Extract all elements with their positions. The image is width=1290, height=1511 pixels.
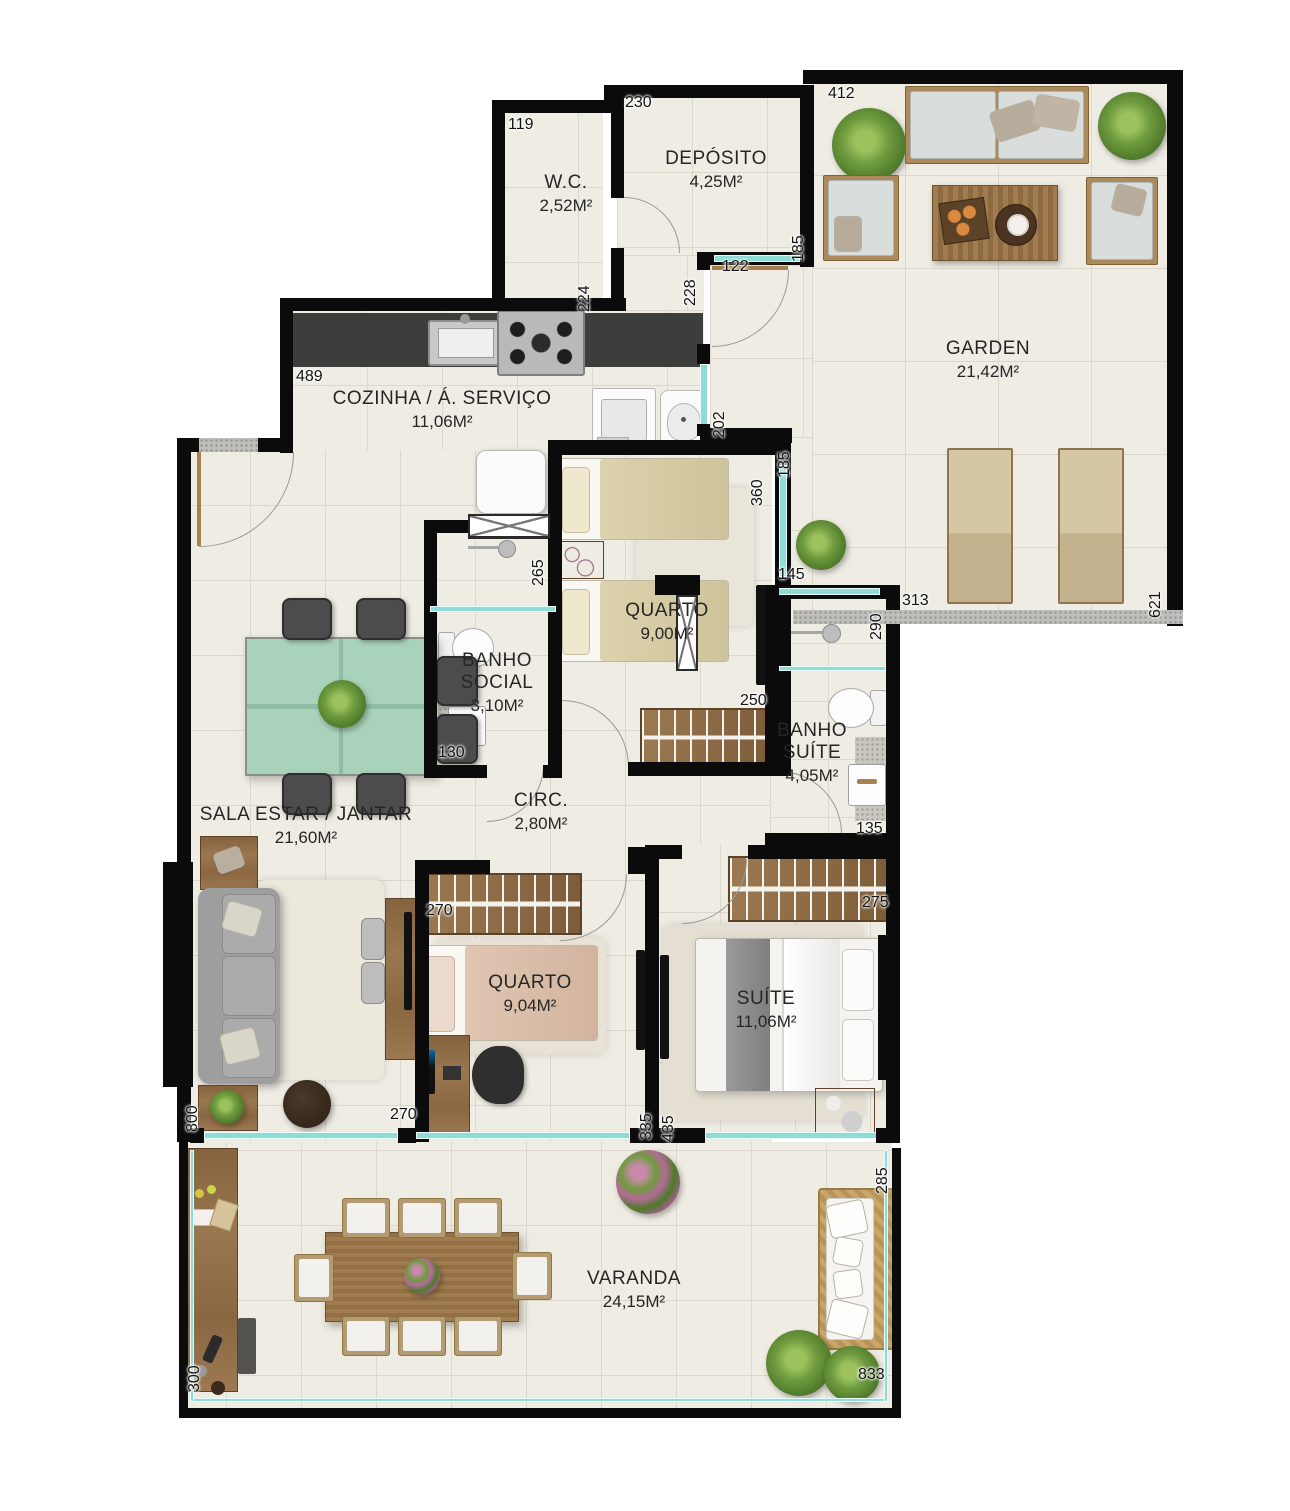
dim-label: 145 (778, 566, 805, 584)
kitchen-window (700, 364, 708, 426)
dim-label: 265 (530, 559, 548, 586)
room-label-deposito: DEPÓSITO4,25M² (665, 148, 767, 192)
dim-label: 833 (858, 1366, 885, 1384)
sala-tv (404, 912, 412, 1010)
dim-label: 360 (749, 479, 767, 506)
room-label-circ: CIRC.2,80M² (514, 790, 568, 834)
quarto1-window (779, 465, 787, 577)
quarto2-varanda-glass-door (416, 1132, 630, 1139)
quarto1-bed-1 (557, 458, 729, 540)
kitchen-sink (428, 320, 504, 366)
garden-lounger-1 (947, 448, 1013, 604)
quarto2-desk-chair (472, 1046, 524, 1104)
varanda-chair (342, 1316, 390, 1356)
sala-ottoman (361, 918, 385, 960)
wall (179, 1408, 901, 1418)
wall (424, 765, 487, 778)
wall (748, 845, 900, 859)
wall (543, 765, 562, 778)
dining-table-plant-icon (318, 680, 366, 728)
suite-tv (660, 955, 669, 1059)
room-label-quarto2: QUARTO9,04M² (488, 972, 572, 1016)
varanda-chair (454, 1316, 502, 1356)
varanda-wicker-sofa (818, 1188, 894, 1350)
walkway-plant-icon (796, 520, 846, 570)
dim-label: 228 (682, 279, 700, 306)
wall (697, 344, 710, 364)
wall (280, 298, 293, 453)
dining-chair (282, 598, 332, 640)
sala-varanda-glass-door (204, 1132, 398, 1139)
entry-threshold (199, 438, 258, 452)
suite-closet (728, 856, 890, 922)
wall (398, 1128, 416, 1143)
room-label-wc: W.C.2,52M² (521, 172, 611, 216)
dining-chair (356, 598, 406, 640)
banho-suite-shower-glass (779, 666, 886, 671)
wall (280, 298, 626, 311)
dim-label: 135 (856, 820, 883, 838)
sala-side-table-plant-icon (210, 1090, 244, 1124)
garden-plant-left-icon (832, 108, 906, 182)
garden-edge (793, 610, 1183, 624)
dim-label: 230 (625, 94, 652, 112)
varanda-railing-glass (190, 1398, 888, 1402)
varanda-flower-plant-icon (616, 1150, 680, 1214)
wall (424, 520, 437, 778)
dim-label: 285 (874, 1167, 892, 1194)
dim-label: 335 (638, 1113, 656, 1140)
dim-label: 185 (790, 235, 808, 262)
garden-lounger-2 (1058, 448, 1124, 604)
dim-label: 290 (868, 613, 886, 640)
sala-tv-rack (385, 898, 417, 1060)
wall (655, 575, 700, 595)
dim-label: 412 (828, 85, 855, 103)
varanda-chair (342, 1198, 390, 1238)
entry-door-leaf (197, 452, 201, 546)
sala-coffee-table (283, 1080, 331, 1128)
dim-label: 119 (508, 116, 534, 134)
wall (258, 438, 282, 452)
dim-label: 435 (660, 1115, 678, 1142)
dim-label: 202 (711, 411, 729, 438)
wall (886, 585, 900, 847)
wall (611, 98, 624, 198)
varanda-chair (454, 1198, 502, 1238)
dim-label: 270 (390, 1106, 417, 1124)
room-label-suite: SUÍTE11,06M² (735, 988, 796, 1032)
varanda-chair (512, 1252, 552, 1300)
wall (163, 862, 193, 1087)
suite-varanda-glass-door (705, 1132, 880, 1139)
room-label-banho-social: BANHO SOCIAL3,10M² (451, 650, 543, 716)
quarto2-tv (636, 950, 645, 1050)
wall (876, 1128, 900, 1143)
dim-label: 185 (776, 451, 794, 478)
banho-social-shower-arm (468, 546, 500, 549)
garden-plant-right-icon (1098, 92, 1166, 160)
room-label-quarto1: QUARTO9,00M² (625, 600, 709, 644)
dim-label: 313 (902, 592, 929, 610)
varanda-plant-icon (766, 1330, 832, 1396)
garden-armchair-left (823, 175, 899, 261)
wall (878, 935, 900, 1080)
varanda-chair (398, 1198, 446, 1238)
varanda-chair (398, 1316, 446, 1356)
quarto1-closet (640, 708, 770, 767)
banho-suite-window (772, 588, 880, 595)
room-label-varanda: VARANDA24,15M² (587, 1268, 681, 1312)
wall (1167, 70, 1183, 626)
room-label-cozinha: COZINHA / Á. SERVIÇO11,06M² (333, 388, 552, 432)
banho-suite-shower-head-icon (822, 624, 841, 643)
garden-sofa (905, 86, 1089, 164)
dim-label: 250 (740, 692, 767, 710)
quarto1-nightstand (558, 541, 604, 579)
room-label-garden: GARDEN21,42M² (946, 338, 1030, 382)
banho-social-shower-glass (430, 606, 556, 612)
garden-coffee-table (932, 185, 1058, 261)
wall (645, 858, 659, 1142)
shaft-duct-banho-social (468, 514, 550, 538)
dim-label: 800 (184, 1105, 202, 1132)
dim-label: 621 (1147, 591, 1165, 618)
wall (803, 70, 1183, 84)
sala-ottoman (361, 962, 385, 1004)
room-label-sala: SALA ESTAR / JANTAR21,60M² (200, 804, 413, 848)
varanda-chair (294, 1254, 334, 1302)
dim-label: 130 (438, 744, 465, 762)
wall (628, 847, 658, 874)
wall (548, 440, 791, 455)
varanda-bench (238, 1318, 256, 1374)
sala-sofa (198, 888, 280, 1084)
banho-social-shower-head-icon (498, 540, 516, 558)
dim-label: 270 (426, 902, 453, 920)
fridge (476, 450, 546, 514)
wall (177, 438, 199, 452)
varanda-table-plant-icon (404, 1258, 440, 1294)
dim-label: 489 (296, 368, 323, 386)
wall (492, 100, 618, 113)
dim-label: 224 (576, 285, 594, 312)
wall (492, 100, 505, 311)
dim-label: 122 (722, 258, 749, 276)
banho-suite-shower-arm (790, 631, 824, 634)
garden-armchair-right (1086, 177, 1158, 265)
dim-label: 300 (186, 1365, 204, 1392)
wall (892, 1148, 901, 1416)
kitchen-stove (497, 310, 585, 376)
room-label-banho-suite: BANHO SUÍTE4,05M² (769, 720, 855, 786)
suite-nightstand (815, 1088, 875, 1138)
dim-label: 275 (862, 894, 889, 912)
wall (697, 252, 710, 270)
floor-plan: W.C.2,52M² DEPÓSITO4,25M² GARDEN21,42M² … (0, 0, 1290, 1511)
